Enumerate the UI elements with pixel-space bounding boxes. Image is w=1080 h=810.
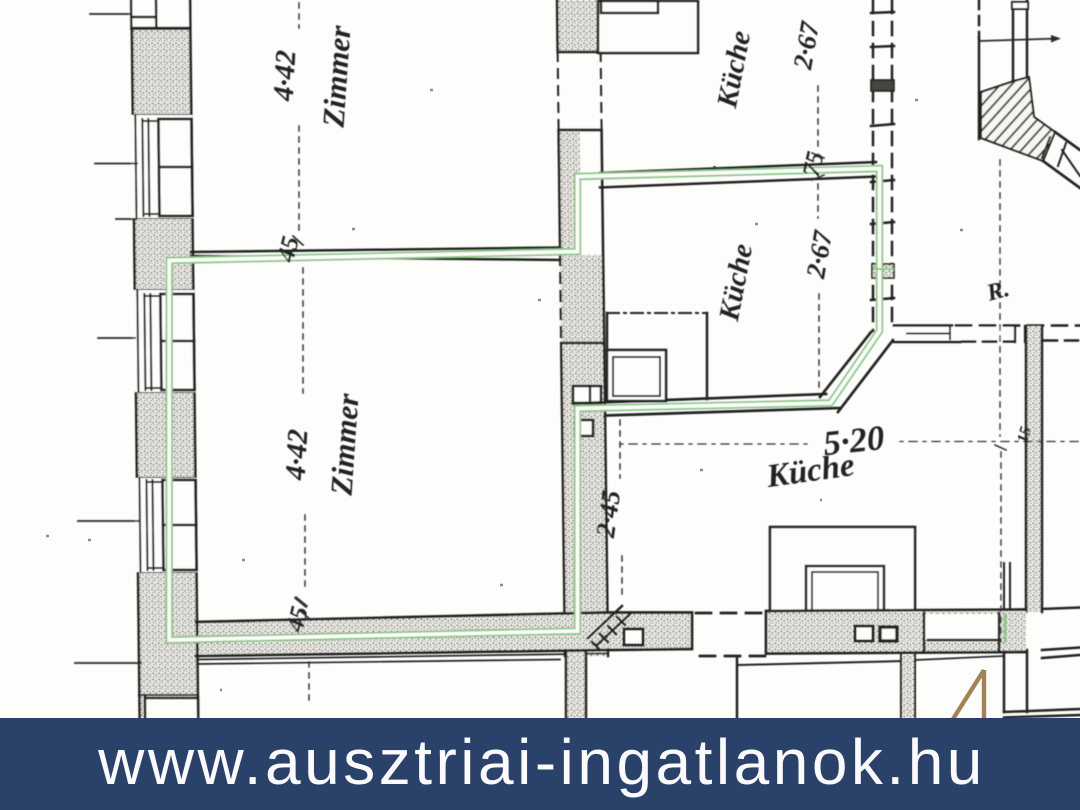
- svg-text:Zimmer: Zimmer: [315, 23, 357, 129]
- svg-text:www.ausztriai-ingatlanok.hu: www.ausztriai-ingatlanok.hu: [97, 726, 986, 798]
- svg-text:Zimmer: Zimmer: [323, 391, 365, 497]
- svg-text:4·42: 4·42: [268, 49, 303, 102]
- svg-text:4·42: 4·42: [280, 428, 315, 481]
